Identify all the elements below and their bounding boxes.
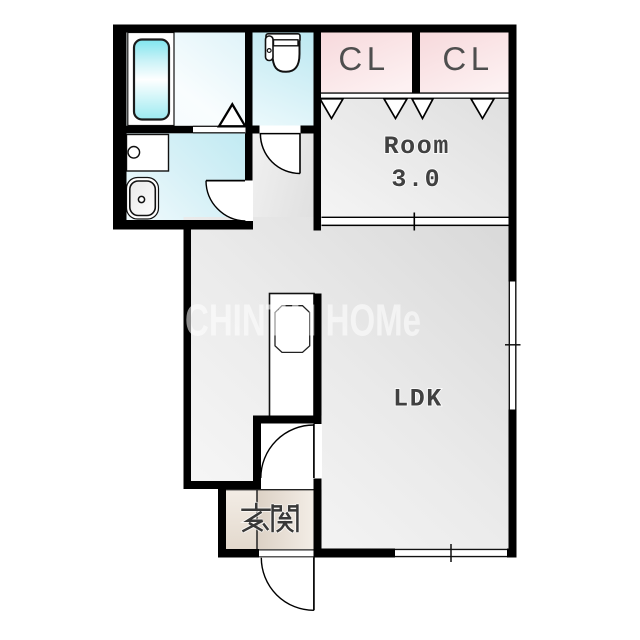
svg-text:CHINTAI HOMe: CHINTAI HOMe (185, 295, 421, 346)
svg-text:CL: CL (442, 40, 493, 77)
svg-text:3.0: 3.0 (391, 165, 441, 194)
svg-text:CL: CL (338, 40, 389, 77)
svg-text:LDK: LDK (393, 385, 443, 414)
svg-text:Room: Room (384, 132, 450, 161)
